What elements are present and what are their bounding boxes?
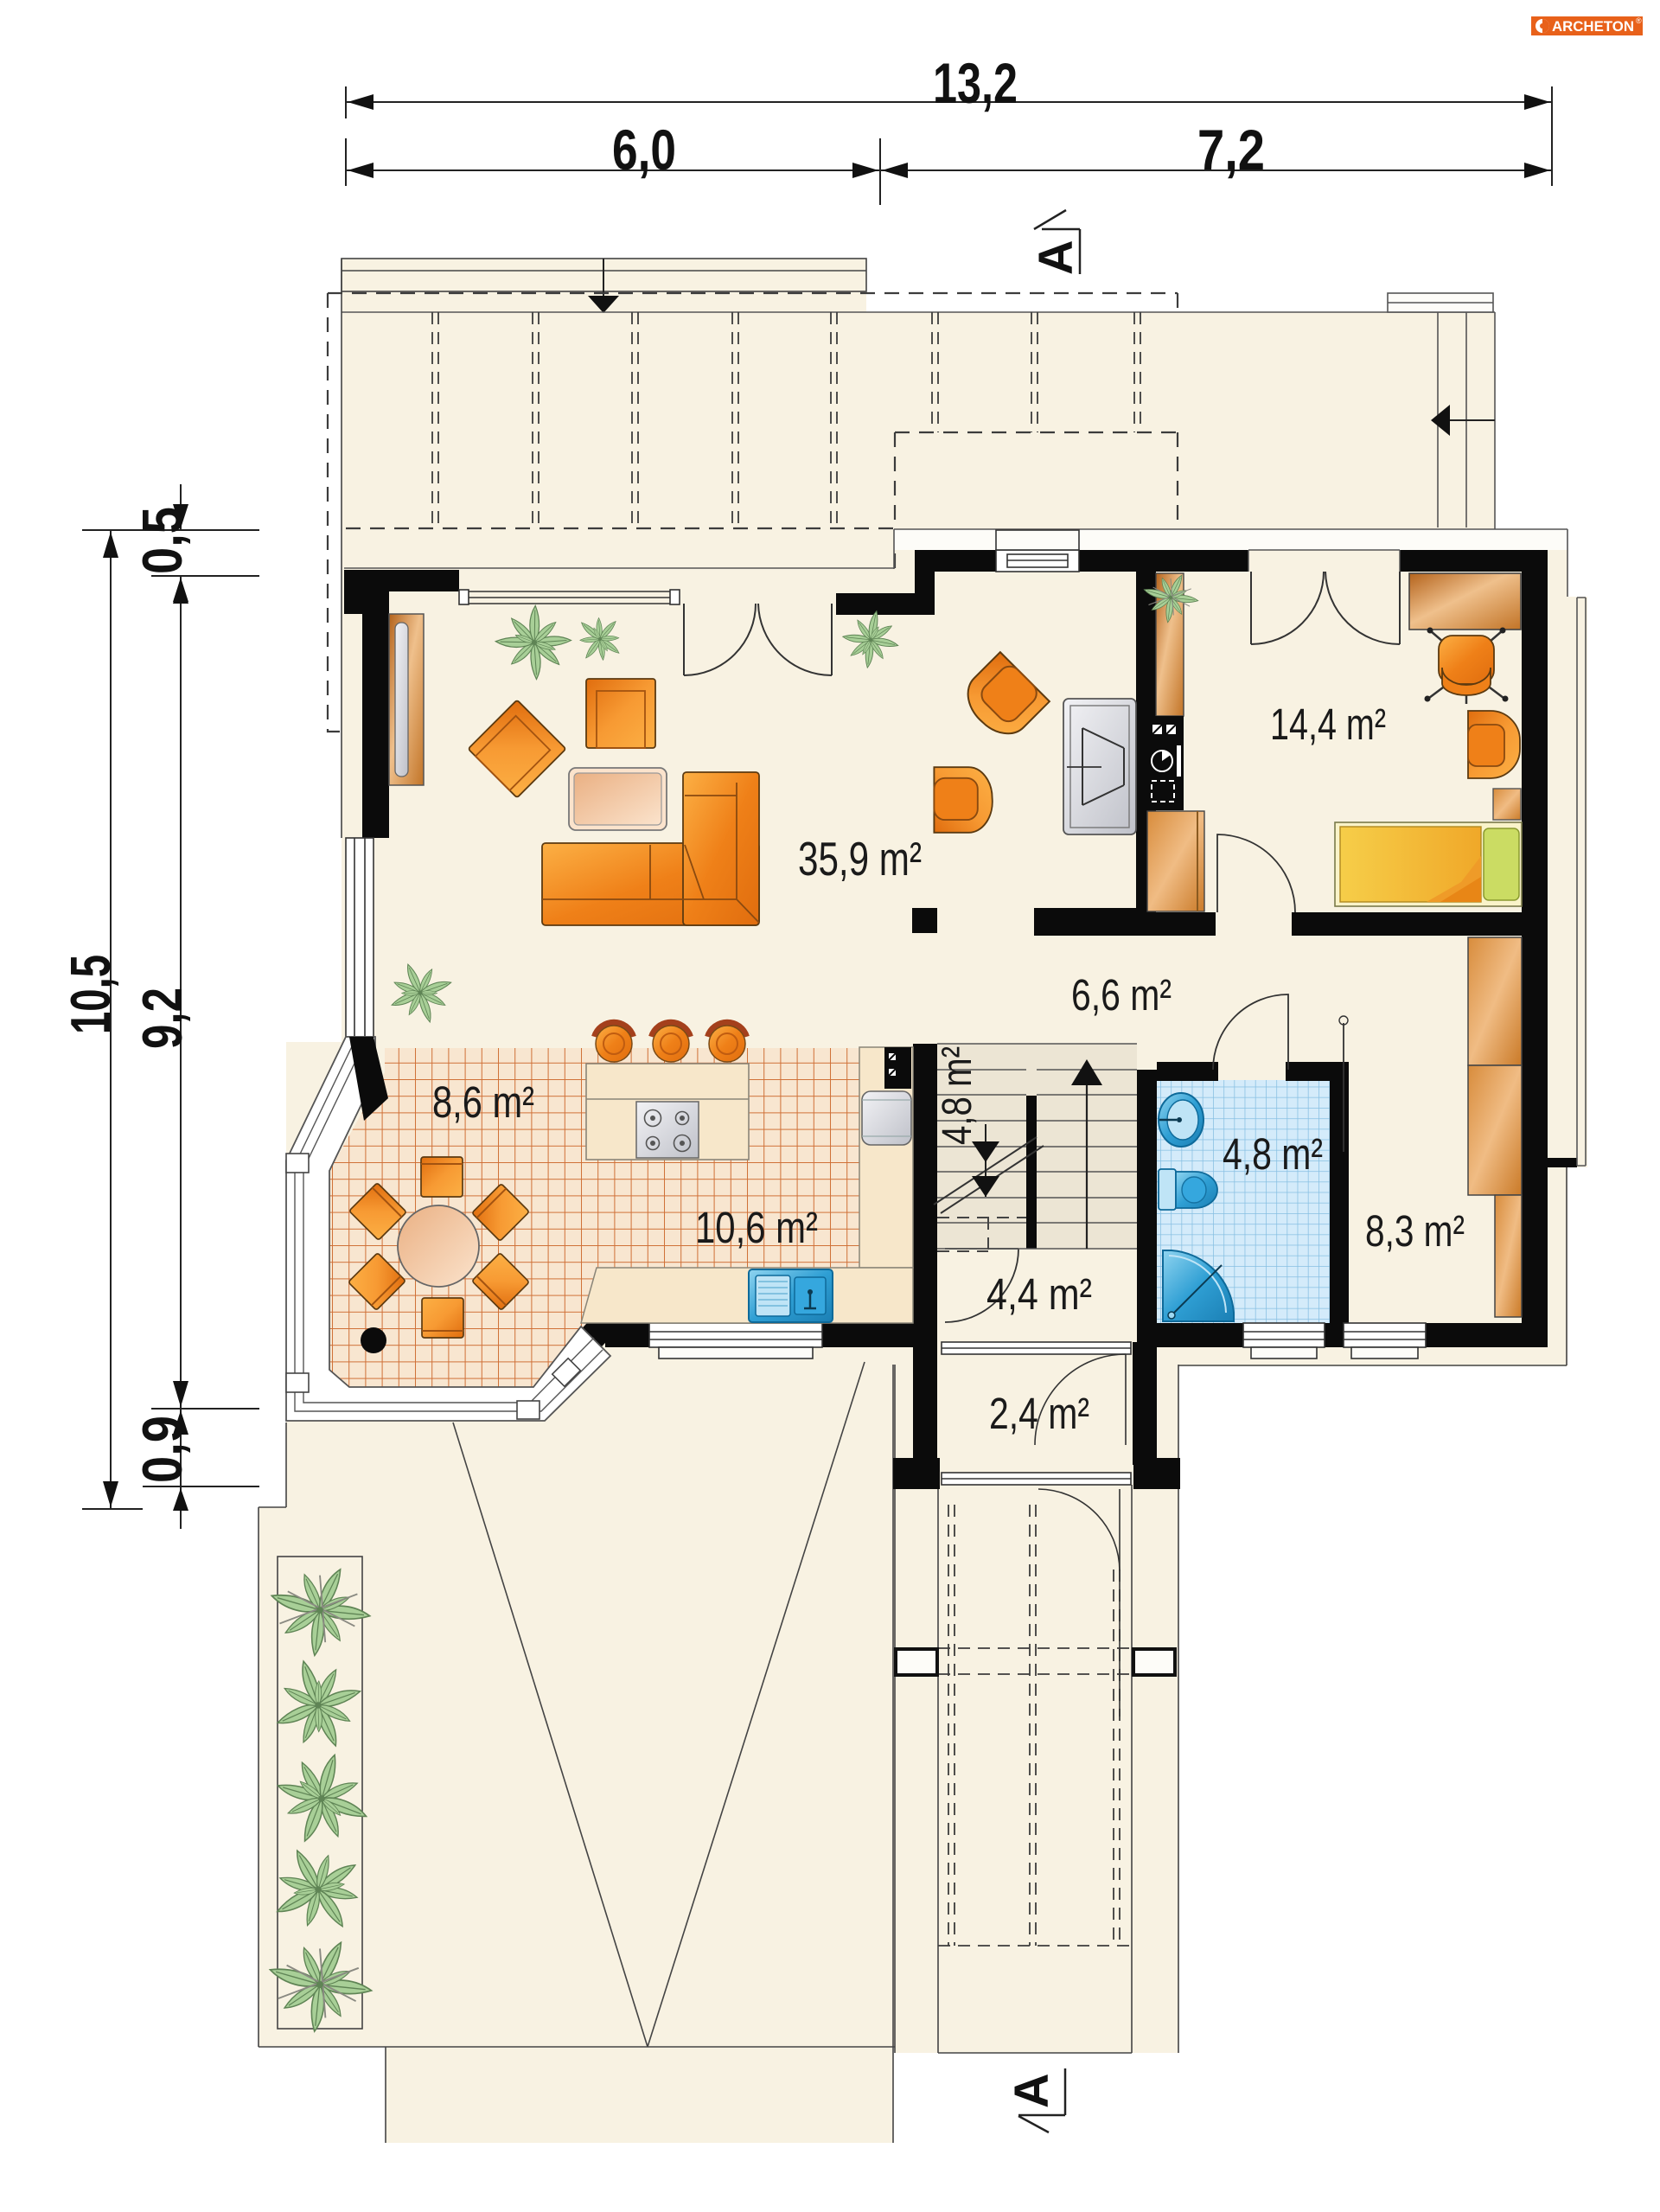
- svg-text:10,6 m²: 10,6 m²: [695, 1203, 818, 1252]
- svg-text:35,9 m²: 35,9 m²: [798, 832, 922, 885]
- svg-text:4,8 m²: 4,8 m²: [935, 1046, 980, 1145]
- svg-text:ARCHETON: ARCHETON: [1552, 18, 1634, 35]
- svg-text:10,5: 10,5: [59, 955, 122, 1034]
- svg-text:®: ®: [1636, 16, 1642, 25]
- svg-text:9,2: 9,2: [131, 988, 194, 1049]
- svg-text:7,2: 7,2: [1197, 118, 1265, 182]
- svg-text:4,8 m²: 4,8 m²: [1223, 1129, 1323, 1179]
- svg-text:8,3 m²: 8,3 m²: [1365, 1206, 1465, 1256]
- svg-text:0,9: 0,9: [131, 1416, 194, 1483]
- svg-text:4,4 m²: 4,4 m²: [986, 1269, 1092, 1319]
- svg-text:A: A: [1028, 240, 1082, 275]
- svg-text:0,5: 0,5: [131, 507, 194, 574]
- svg-text:14,4 m²: 14,4 m²: [1270, 700, 1386, 749]
- svg-text:A: A: [1004, 2074, 1058, 2108]
- svg-text:2,4 m²: 2,4 m²: [989, 1389, 1089, 1438]
- svg-text:8,6 m²: 8,6 m²: [432, 1077, 534, 1127]
- svg-text:6,6 m²: 6,6 m²: [1071, 970, 1172, 1020]
- svg-text:6,0: 6,0: [612, 118, 676, 182]
- svg-text:13,2: 13,2: [933, 51, 1018, 115]
